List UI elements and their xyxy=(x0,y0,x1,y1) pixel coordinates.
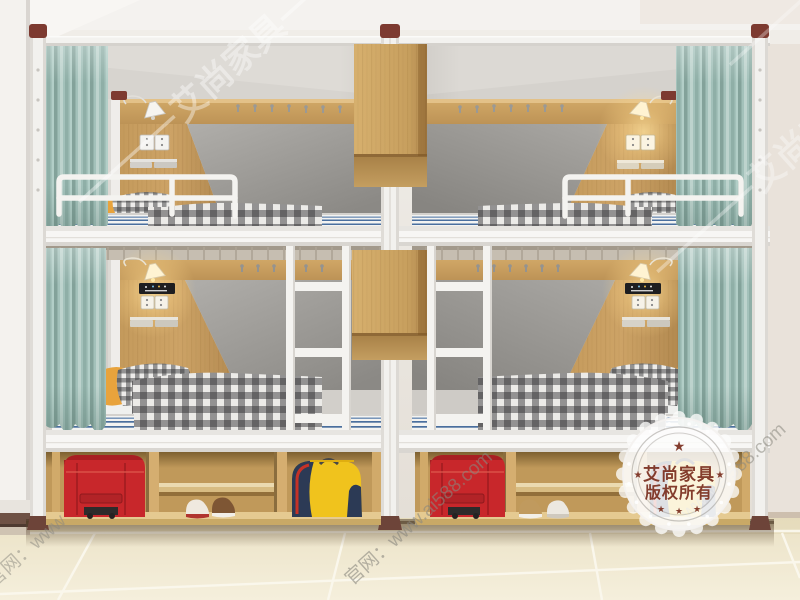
svg-text:★: ★ xyxy=(634,470,643,481)
svg-text:★: ★ xyxy=(673,438,686,454)
svg-text:★: ★ xyxy=(716,470,725,481)
svg-text:版权所有: 版权所有 xyxy=(644,483,713,502)
svg-text:★: ★ xyxy=(657,504,665,514)
svg-text:艾尚家具: 艾尚家具 xyxy=(643,464,715,484)
svg-text:★: ★ xyxy=(693,504,701,514)
svg-text:★: ★ xyxy=(675,506,683,516)
